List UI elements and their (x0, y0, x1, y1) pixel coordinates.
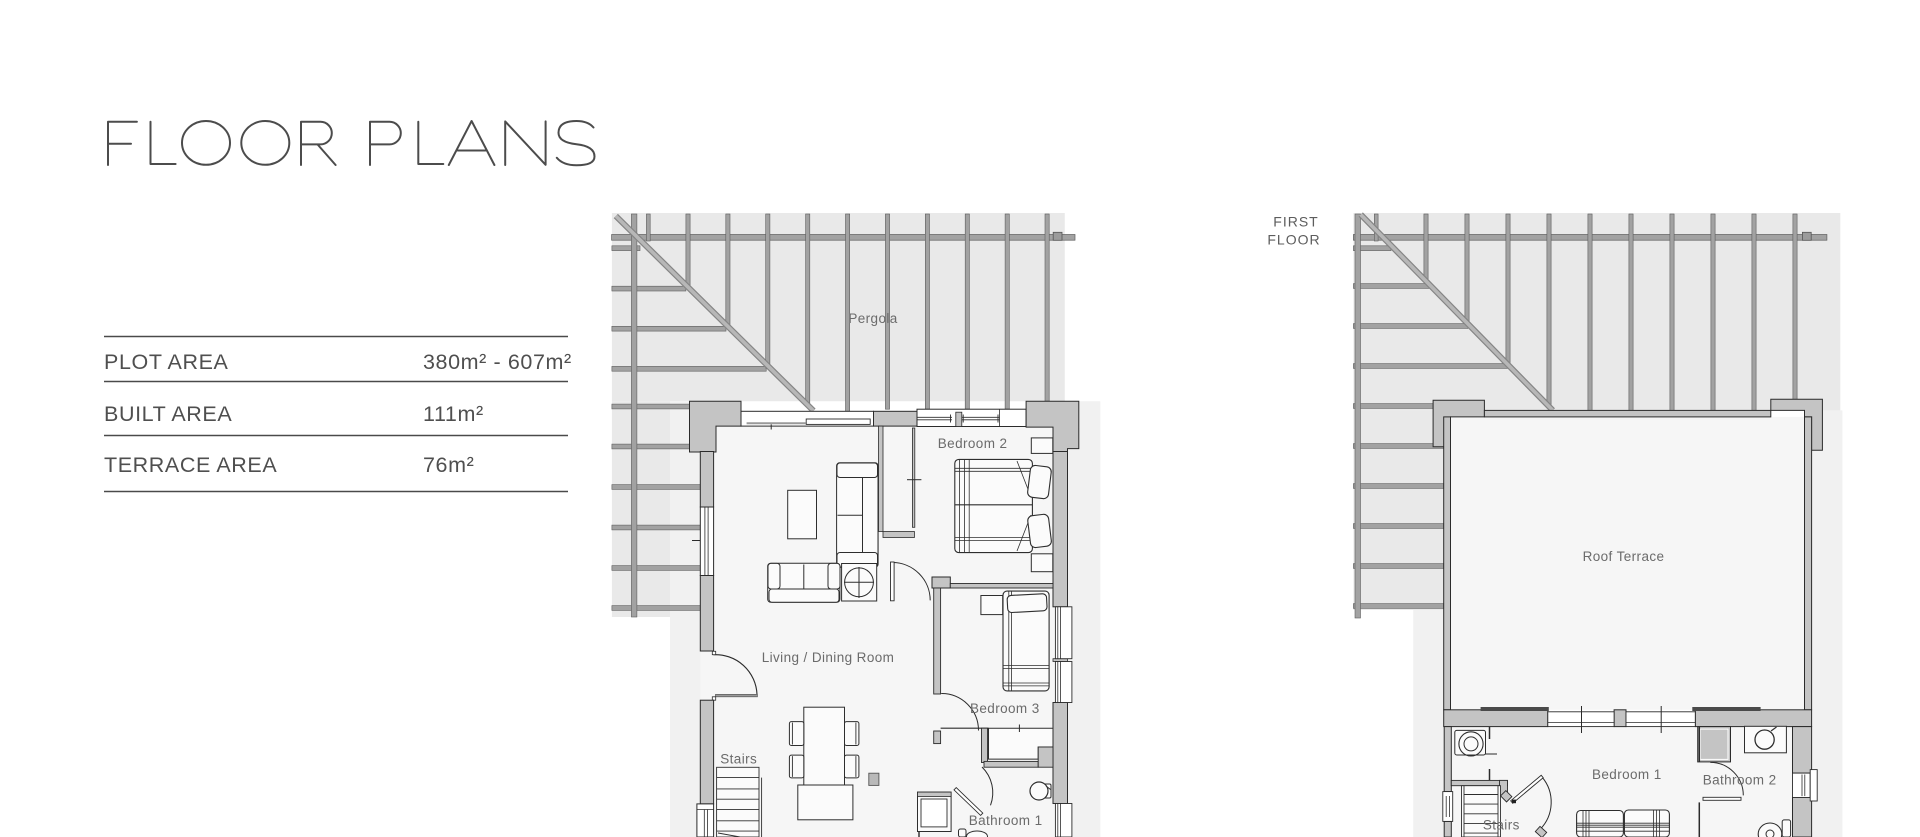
svg-text:Bathroom 1: Bathroom 1 (969, 813, 1043, 828)
svg-text:Bedroom 2: Bedroom 2 (938, 436, 1008, 451)
svg-text:Living / Dining Room: Living / Dining Room (762, 650, 895, 665)
svg-text:PLOT AREA: PLOT AREA (104, 350, 229, 374)
svg-text:Stairs: Stairs (1483, 817, 1520, 832)
svg-text:76m²: 76m² (423, 453, 474, 477)
svg-text:BUILT AREA: BUILT AREA (104, 402, 232, 426)
svg-text:FIRST: FIRST (1273, 214, 1318, 230)
svg-text:380m² - 607m²: 380m² - 607m² (423, 350, 572, 374)
svg-text:Bedroom 3: Bedroom 3 (970, 701, 1040, 716)
svg-text:Roof Terrace: Roof Terrace (1583, 549, 1665, 564)
svg-text:Bathroom 2: Bathroom 2 (1703, 772, 1777, 787)
svg-text:111m²: 111m² (423, 402, 484, 426)
svg-text:Pergola: Pergola (848, 311, 897, 326)
svg-text:Bedroom 1: Bedroom 1 (1592, 767, 1662, 782)
svg-text:FLOOR: FLOOR (1267, 232, 1320, 248)
svg-text:Stairs: Stairs (720, 751, 757, 766)
svg-text:TERRACE AREA: TERRACE AREA (104, 453, 277, 477)
